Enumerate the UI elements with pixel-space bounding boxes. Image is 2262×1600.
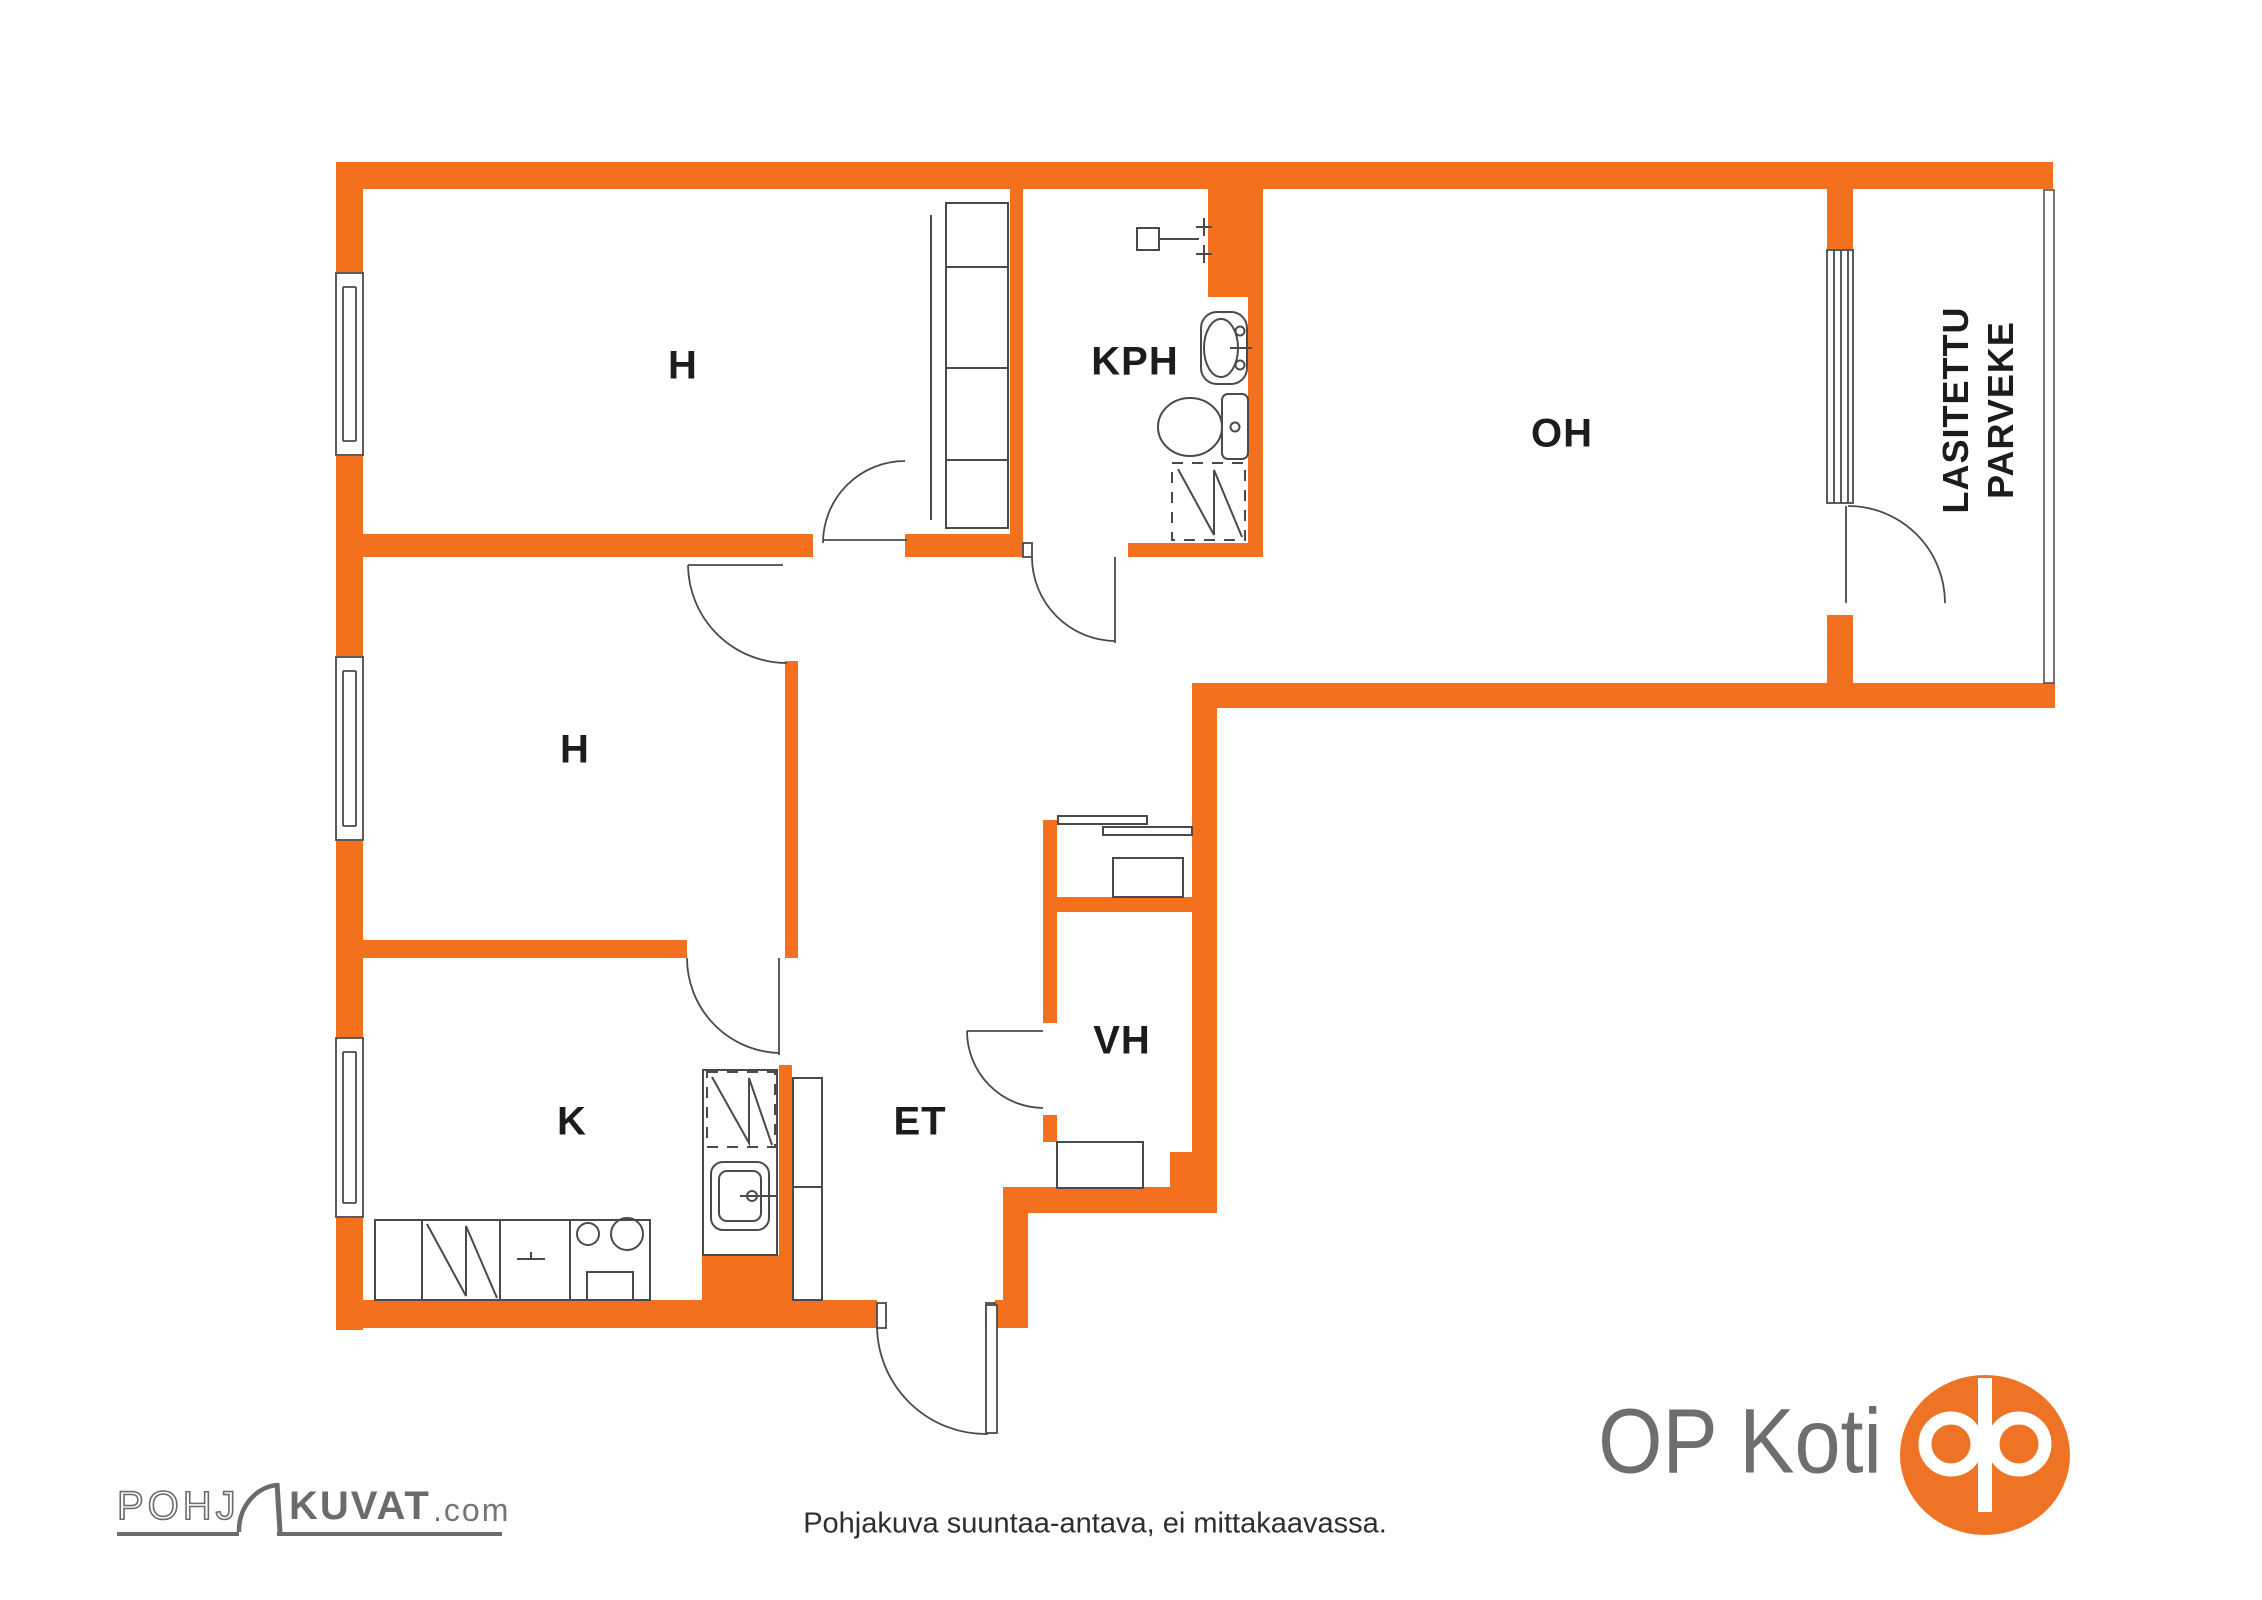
oven-icon [587, 1272, 633, 1300]
room-label-balcony: LASITETTU PARVEKE [1933, 307, 2023, 514]
window-icon-kitchen [334, 1037, 365, 1218]
room-label-kitchen: K [557, 1100, 587, 1145]
pohjakuvat-logo-domain: .com [433, 1492, 510, 1529]
stove-burner-small [577, 1223, 599, 1245]
sink-icon-bathroom [1201, 312, 1252, 384]
appliance-zigzag [427, 1224, 497, 1298]
room-label-living-room: OH [1531, 412, 1593, 457]
door-bathroom [1023, 543, 1115, 643]
kitchen-counter-right [703, 1070, 778, 1255]
dishwasher-icon [707, 1072, 775, 1147]
logo-baseline-right [277, 1532, 502, 1536]
window-icon-bedroom1 [334, 272, 365, 456]
door-entrance [877, 1303, 997, 1434]
floorplan-page: H H K ET VH KPH OH LASITETTU PARVEKE Poh… [0, 0, 2262, 1600]
shower-mixer-icon [1137, 218, 1212, 263]
faucet-icon-counter [517, 1252, 545, 1259]
pohjakuvat-logo: POHJ KUVAT .com [117, 1478, 517, 1536]
room-label-bathroom: KPH [1091, 340, 1178, 385]
door-glyph-icon [236, 1480, 284, 1534]
balcony-label-line1: LASITETTU [1933, 307, 1978, 514]
doors [687, 461, 1945, 1434]
logo-baseline-left [117, 1532, 239, 1536]
floorplan-drawing [0, 0, 2262, 1600]
op-logo-icon [1898, 1374, 2072, 1538]
room-label-entry: ET [893, 1100, 946, 1145]
door-bedroom1 [823, 461, 907, 543]
wardrobe-icon-bedroom1 [931, 203, 1008, 528]
window-icon-bedroom2 [334, 656, 365, 841]
door-kitchen [687, 958, 779, 1055]
disclaimer-text: Pohjakuva suuntaa-antava, ei mittakaavas… [803, 1508, 1387, 1541]
niche-shelves [1058, 816, 1192, 897]
room-label-closet: VH [1093, 1019, 1151, 1064]
pohjakuvat-logo-outline-text: POHJ [117, 1484, 240, 1529]
closet-shelf [1057, 1142, 1143, 1188]
shower-area-zigzag [1178, 469, 1242, 537]
door-closet [967, 1031, 1043, 1108]
door-bedroom2 [688, 565, 787, 663]
balcony-glass-rail [2044, 190, 2054, 683]
dishwasher-zigzag [712, 1077, 772, 1145]
room-label-bedroom2: H [560, 728, 590, 773]
kitchen-counter-bottom [375, 1218, 650, 1300]
walls [336, 162, 2055, 1330]
stove-burner-large [611, 1218, 643, 1250]
hallway-cabinets [793, 1078, 822, 1300]
balcony-label-line2: PARVEKE [1978, 307, 2023, 514]
toilet-icon [1158, 394, 1248, 459]
room-label-bedroom1: H [668, 344, 698, 389]
shower-area-icon [1172, 463, 1245, 540]
window-icon-balcony [1825, 249, 1855, 504]
door-balcony [1846, 506, 1945, 603]
op-koti-wordmark: OP Koti [1598, 1390, 1882, 1495]
pohjakuvat-logo-bold-text: KUVAT [289, 1484, 431, 1529]
